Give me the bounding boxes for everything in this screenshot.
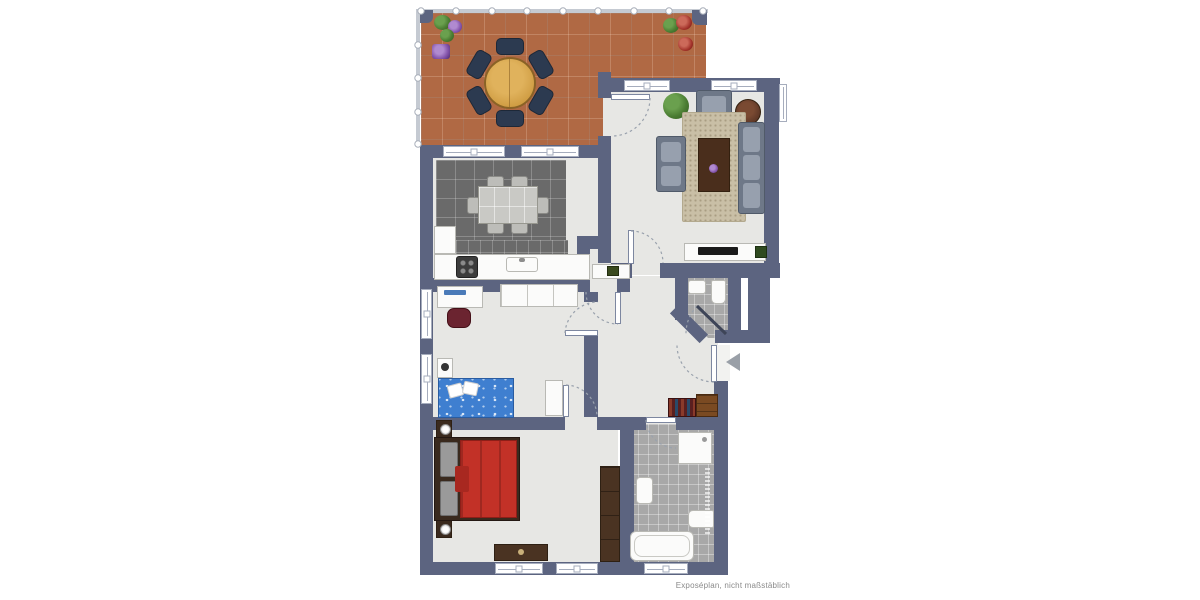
wall-bath-top xyxy=(620,417,646,430)
childrens-cabinet xyxy=(545,380,563,416)
hall-sideboard-item-icon xyxy=(607,266,619,276)
stove-icon xyxy=(456,256,478,278)
childrens-pillow-2 xyxy=(462,381,479,397)
entrance-door xyxy=(711,345,717,382)
wall-bedroom-top-right xyxy=(597,417,620,430)
footer-note: Exposéplan, nicht maßstäblich xyxy=(660,581,790,590)
terrace-chair xyxy=(496,38,524,55)
bathroom-window xyxy=(644,563,688,574)
wall-corridor-left-upper xyxy=(584,292,598,302)
terrace-flowerbox-icon xyxy=(432,44,450,59)
childrens-room-door xyxy=(565,330,598,336)
bedside-lamp-icon xyxy=(440,424,451,435)
bathtub-inner xyxy=(634,535,690,557)
armchair-left-cushion xyxy=(661,142,681,162)
terrace-round-table xyxy=(484,57,536,109)
floor-plan: Exposéplan, nicht maßstäblich xyxy=(0,0,1200,600)
wc-toilet-icon xyxy=(711,280,726,304)
wall-corridor-left-lower xyxy=(584,336,598,417)
childrens-window-2 xyxy=(421,354,432,404)
watermark-strip xyxy=(705,468,710,534)
bed-throw xyxy=(455,466,469,492)
sink-faucet-icon xyxy=(519,258,525,262)
entrance-arrow-icon xyxy=(726,353,740,371)
dining-table xyxy=(478,186,538,224)
terrace-plant2-icon xyxy=(440,29,454,42)
living-window-1 xyxy=(624,80,670,91)
hall-bookshelf xyxy=(668,398,696,417)
bedroom-wardrobe xyxy=(600,466,620,562)
wall-bedroom-left xyxy=(420,417,433,575)
wall-living-left-upper xyxy=(598,72,611,98)
wall-entrance-step xyxy=(715,330,755,343)
sofa-cushion xyxy=(743,127,760,152)
bedroom-window-1 xyxy=(495,563,543,574)
dining-window-2 xyxy=(521,146,579,157)
kitchen-tall-cabinet xyxy=(434,226,456,254)
wall-bath-top-right xyxy=(676,417,714,430)
terrace-living-door xyxy=(611,94,650,100)
sofa-cushion3 xyxy=(743,183,760,208)
sofa-cushion2 xyxy=(743,155,760,180)
sideboard-plant-icon xyxy=(755,246,767,258)
living-hall-door xyxy=(628,230,634,264)
bedroom-window-2 xyxy=(556,563,598,574)
shower-icon xyxy=(678,432,712,464)
shower-drain-icon xyxy=(702,437,707,442)
terrace-railing-left xyxy=(416,9,420,147)
childrens-window-1 xyxy=(421,289,432,339)
wc-sink-icon xyxy=(688,280,706,294)
armchair-left-cushion2 xyxy=(661,166,681,186)
tv-icon xyxy=(698,247,738,255)
terrace-flower-red-icon xyxy=(676,15,692,30)
desk-items-icon xyxy=(444,290,466,295)
bedroom-door xyxy=(563,385,569,417)
terrace-corner-post-right xyxy=(692,10,707,25)
childrens-desk-chair xyxy=(447,308,471,328)
terrace-flower-red2-icon xyxy=(678,37,693,51)
dresser-knob-icon xyxy=(518,549,524,555)
dining-window-1 xyxy=(443,146,505,157)
wall-dining-left xyxy=(420,145,433,278)
kitchen-door xyxy=(615,292,621,324)
terrace-chair xyxy=(496,110,524,127)
coffee-table-flowers-icon xyxy=(709,164,718,173)
bedside-lamp2-icon xyxy=(440,524,451,535)
bath-toilet-icon xyxy=(688,510,714,528)
nightstand-item-icon xyxy=(441,363,449,371)
childrens-wardrobe xyxy=(500,284,578,307)
living-window-right xyxy=(779,84,787,122)
bath-sink-icon xyxy=(636,477,653,504)
terrace-table-centerline xyxy=(509,59,510,107)
bathroom-door xyxy=(646,417,676,423)
hall-dresser xyxy=(696,394,718,417)
terrace-corner-post-left xyxy=(420,10,433,23)
wall-kitchen-door-nub xyxy=(617,278,630,292)
